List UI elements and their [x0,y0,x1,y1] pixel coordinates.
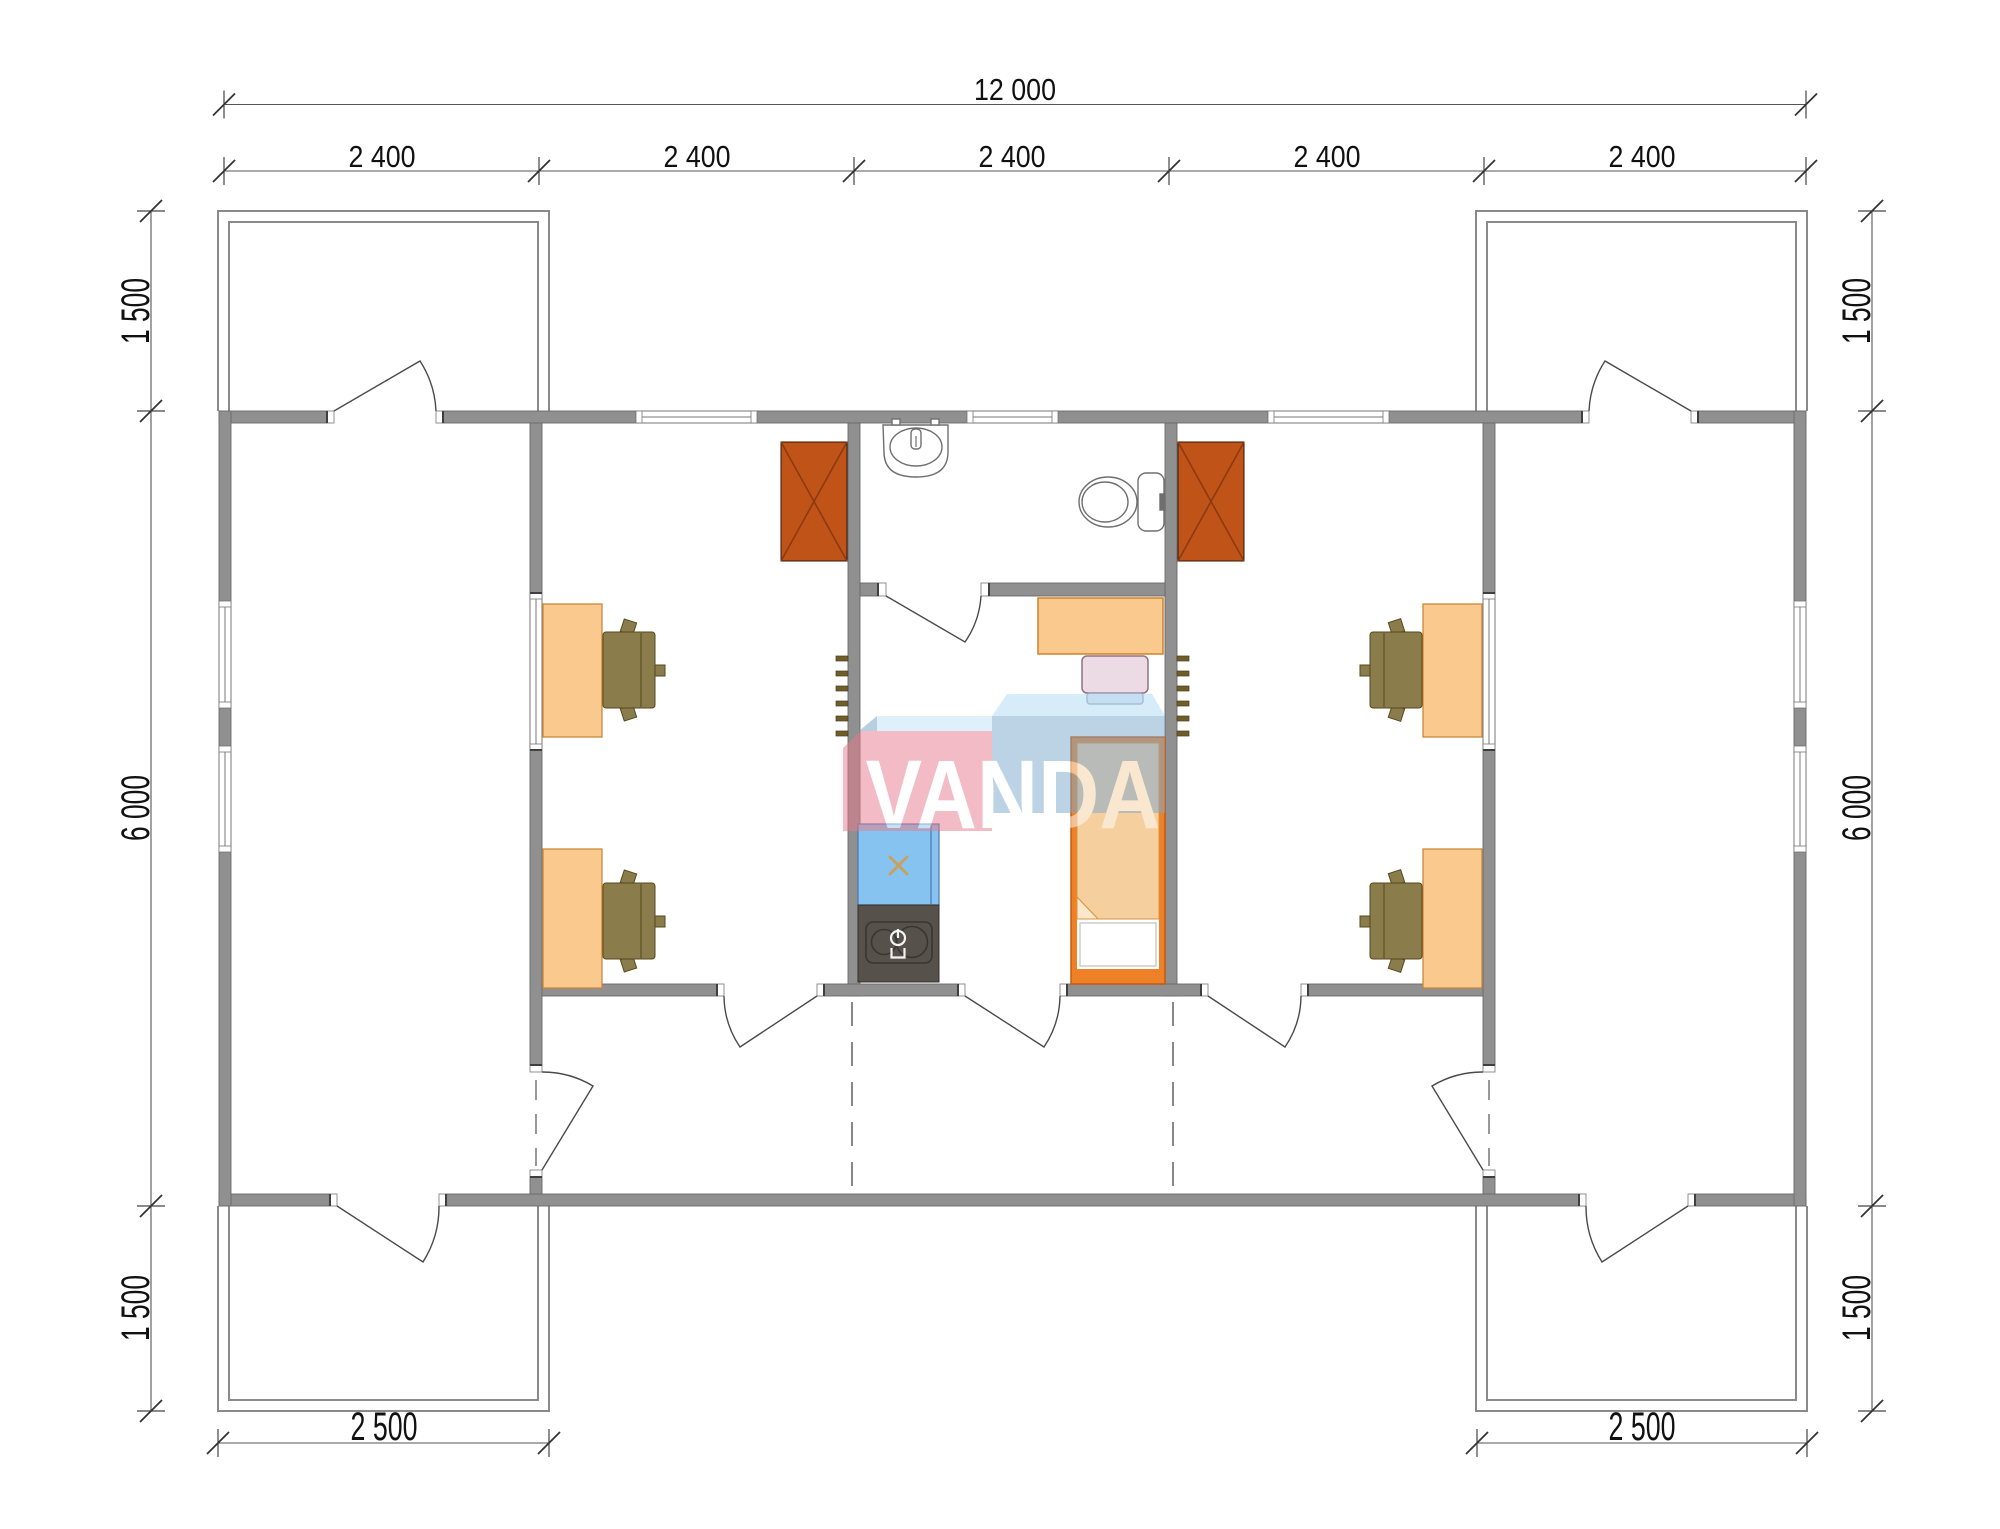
svg-text:6 000: 6 000 [1835,775,1879,841]
svg-text:12 000: 12 000 [974,72,1056,107]
svg-text:VANDA: VANDA [866,740,1161,849]
svg-text:1 500: 1 500 [1835,278,1879,344]
svg-text:2 400: 2 400 [664,139,731,174]
svg-text:1 500: 1 500 [114,1275,158,1341]
svg-text:1 500: 1 500 [1835,1275,1879,1341]
svg-text:2 400: 2 400 [1294,139,1361,174]
svg-text:2 400: 2 400 [979,139,1046,174]
svg-text:1 500: 1 500 [114,278,158,344]
svg-text:2 400: 2 400 [349,139,416,174]
svg-text:2 400: 2 400 [1609,139,1676,174]
svg-text:6 000: 6 000 [114,775,158,841]
